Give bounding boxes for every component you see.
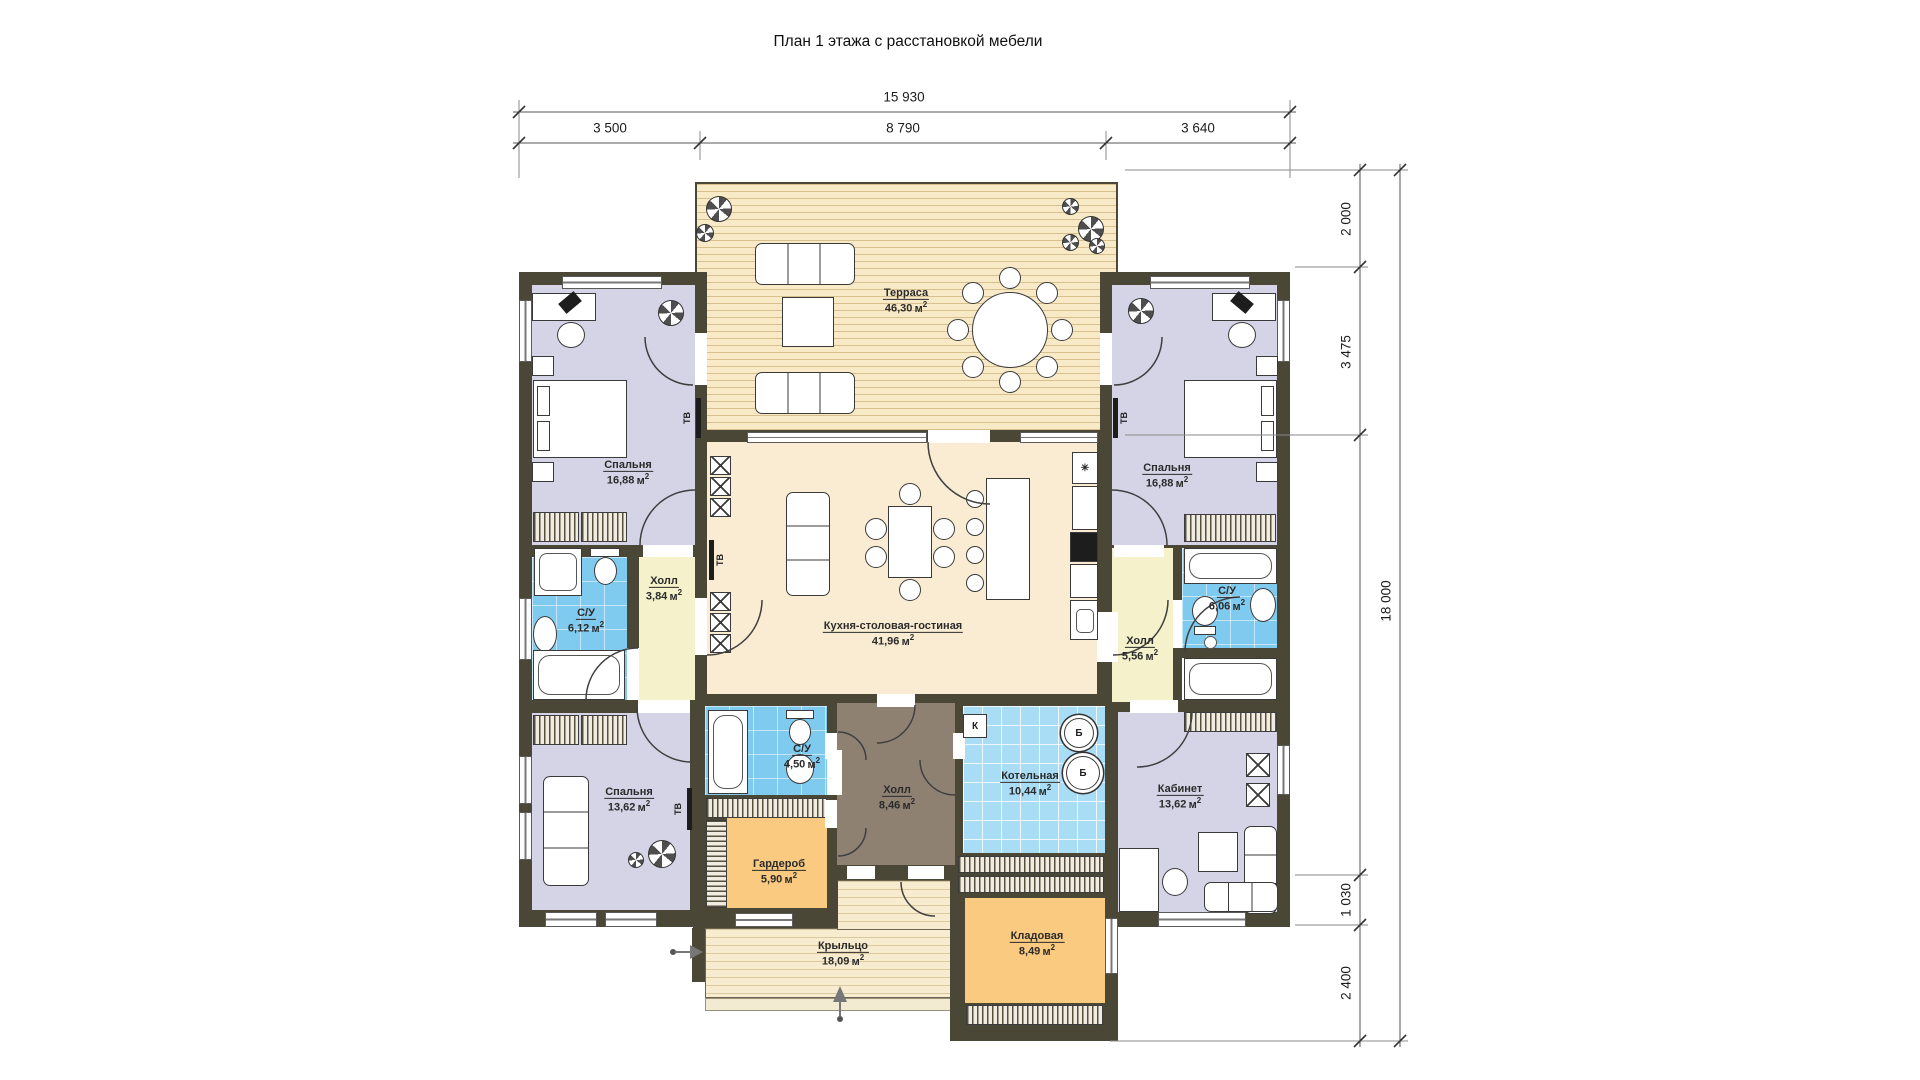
- room-label-bedroom-bl: Спальня 13,62 м2: [604, 785, 654, 815]
- room-name: Кухня-столовая-гостиная: [823, 620, 963, 633]
- room-name: Спальня: [603, 459, 653, 472]
- door-opening: [695, 598, 707, 655]
- stool-icon: [966, 546, 984, 564]
- wardrobe-icon: [1184, 712, 1277, 732]
- sink-icon: [1250, 588, 1276, 622]
- chair-icon: [899, 483, 921, 505]
- shelving-icon: [958, 876, 1104, 893]
- chair-icon: [865, 518, 887, 540]
- door-opening: [825, 733, 837, 759]
- window: [519, 300, 532, 362]
- shelf-icon: [710, 613, 731, 632]
- pillow-icon: [537, 421, 550, 451]
- chair-icon: [933, 518, 955, 540]
- dim-seg: 3 640: [1181, 121, 1215, 136]
- coffee-table-icon: [1198, 832, 1238, 872]
- plant-icon: [1062, 198, 1079, 215]
- room-area: 41,96 м2: [872, 636, 914, 648]
- wardrobe-icon: [581, 715, 627, 745]
- dim-total-height: 18 000: [1379, 580, 1394, 621]
- room-area: 5,56 м2: [1122, 651, 1158, 663]
- room-name: Котельная: [1000, 770, 1060, 783]
- chair-icon: [899, 579, 921, 601]
- desk-chair-icon: [1228, 322, 1256, 348]
- door-opening: [643, 545, 693, 557]
- shelf-icon: [710, 456, 731, 475]
- ceiling-fan-icon: [658, 300, 684, 326]
- pillow-icon: [1261, 421, 1274, 451]
- window: [519, 756, 532, 804]
- nightstand-icon: [532, 356, 554, 376]
- room-area: 5,90 м2: [761, 874, 797, 886]
- dim-seg: 2 000: [1339, 202, 1354, 236]
- room-area: 4,50 м2: [784, 759, 820, 771]
- nightstand-icon: [532, 462, 554, 482]
- desk-icon: [1119, 848, 1159, 912]
- sink-icon: [533, 616, 557, 652]
- dim-seg: 3 475: [1339, 335, 1354, 369]
- stool-icon: [966, 518, 984, 536]
- porch-column: [692, 928, 705, 982]
- nightstand-icon: [1256, 356, 1278, 376]
- stool-icon: [966, 490, 984, 508]
- room-area: 6,12 м2: [568, 623, 604, 635]
- room-area: 16,88 м2: [607, 475, 649, 487]
- shelf-icon: [1246, 753, 1270, 777]
- door-opening: [627, 648, 639, 700]
- room-name: Терраса: [883, 287, 929, 300]
- room-name: Кабинет: [1157, 783, 1204, 796]
- tv-icon: [1113, 398, 1118, 438]
- corner-sofa-icon: [1204, 882, 1278, 912]
- boiler-tank-icon: Б: [1066, 756, 1100, 790]
- door-opening: [1097, 612, 1118, 662]
- boiler-tank-icon: Б: [1064, 718, 1094, 748]
- toilet-tank-icon: [590, 548, 620, 557]
- ceiling-fan-icon: [628, 852, 644, 868]
- dim-seg: 3 500: [593, 121, 627, 136]
- desk-chair-icon: [557, 322, 585, 348]
- chair-icon: [947, 319, 969, 341]
- chair-icon: [999, 371, 1021, 393]
- toilet-icon: [594, 557, 617, 585]
- sofa-icon: [755, 372, 855, 414]
- boiler-k-box: К: [963, 714, 987, 738]
- bathtub-icon: [1184, 658, 1277, 700]
- room-label-su-center: С/У 4,50 м2: [784, 742, 820, 772]
- room-name: Холл: [1125, 635, 1155, 648]
- chair-icon: [933, 546, 955, 568]
- plant-icon: [696, 224, 714, 242]
- entry-door-opening: [847, 866, 875, 879]
- tv-label: ТВ: [715, 554, 725, 566]
- room-area: 18,09 м2: [822, 956, 864, 968]
- chair-icon: [1051, 319, 1073, 341]
- floor-plan-canvas: План 1 этажа с расстановкой мебели: [0, 0, 1920, 1080]
- chair-icon: [962, 356, 984, 378]
- bathtub-icon: [1184, 548, 1277, 584]
- door-opening: [1114, 545, 1164, 557]
- desk-chair-icon: [1162, 868, 1188, 896]
- room-label-su-left: С/У 6,12 м2: [568, 606, 604, 636]
- tv-label: ТВ: [1119, 412, 1129, 424]
- plant-icon: [706, 196, 732, 222]
- window: [519, 812, 532, 860]
- door-opening: [825, 800, 837, 828]
- room-name: Гардероб: [752, 858, 806, 871]
- tv-label: ТВ: [673, 803, 683, 815]
- shelf-icon: [710, 592, 731, 611]
- wardrobe-icon: [706, 798, 827, 818]
- window: [545, 912, 597, 927]
- chair-icon: [1036, 282, 1058, 304]
- bathtub-icon: [708, 710, 748, 794]
- window: [1277, 745, 1290, 795]
- room-name: Холл: [882, 784, 912, 797]
- shelf-icon: [710, 498, 731, 517]
- chair-icon: [999, 267, 1021, 289]
- room-label-bedroom-tl: Спальня 16,88 м2: [603, 458, 653, 488]
- window: [1150, 276, 1250, 289]
- room-label-terrace: Терраса 46,30 м2: [883, 286, 929, 316]
- room-label-kitchen: Кухня-столовая-гостиная 41,96 м2: [823, 619, 963, 649]
- dim-seg: 2 400: [1339, 966, 1354, 1000]
- window: [1277, 300, 1290, 362]
- nightstand-icon: [1256, 462, 1278, 482]
- room-area: 6,06 м2: [1209, 601, 1245, 613]
- kitchen-island-icon: [986, 478, 1030, 600]
- round-table-icon: [972, 292, 1048, 368]
- sofa-icon: [755, 243, 855, 285]
- coffee-table-icon: [782, 297, 834, 347]
- toilet-tank-icon: [1194, 626, 1216, 635]
- room-label-hall-small: Холл 3,84 м2: [646, 574, 682, 604]
- dim-seg: 8 790: [886, 121, 920, 136]
- ceiling-fan-icon: [648, 840, 676, 868]
- room-label-bedroom-tr: Спальня 16,88 м2: [1142, 461, 1192, 491]
- room-name: С/У: [792, 743, 812, 756]
- wardrobe-icon: [533, 512, 579, 542]
- room-label-cabinet: Кабинет 13,62 м2: [1157, 782, 1204, 812]
- door-opening: [1130, 700, 1178, 713]
- drain-icon: [1204, 636, 1217, 649]
- tv-label: ТВ: [682, 412, 692, 424]
- window: [747, 432, 927, 443]
- ceiling-fan-icon: [1128, 298, 1154, 324]
- door-opening: [928, 430, 990, 443]
- fridge-icon: ✳: [1072, 452, 1098, 484]
- window: [605, 912, 657, 927]
- oven-icon: [1070, 532, 1098, 562]
- room-area: 8,49 м2: [1019, 946, 1055, 958]
- room-hall-right: [1112, 548, 1173, 702]
- room-area: 10,44 м2: [1009, 786, 1051, 798]
- chair-icon: [1036, 356, 1058, 378]
- room-label-wardrobe: Гардероб 5,90 м2: [752, 857, 806, 887]
- room-name: Крыльцо: [817, 940, 869, 953]
- plant-icon: [1062, 234, 1079, 251]
- shelf-icon: [710, 477, 731, 496]
- tv-icon: [709, 540, 714, 580]
- room-name: С/У: [576, 607, 596, 620]
- shelf-icon: [1246, 783, 1270, 807]
- door-opening: [877, 694, 915, 707]
- door-opening: [1173, 600, 1182, 648]
- dim-seg: 1 030: [1339, 883, 1354, 917]
- shelving-icon: [958, 856, 1104, 873]
- room-name: Кладовая: [1010, 930, 1065, 943]
- room-label-boiler: Котельная 10,44 м2: [1000, 769, 1060, 799]
- room-name: Холл: [649, 575, 679, 588]
- room-area: 16,88 м2: [1146, 478, 1188, 490]
- room-name: Спальня: [604, 786, 654, 799]
- room-label-storage: Кладовая 8,49 м2: [1010, 929, 1065, 959]
- chair-icon: [865, 546, 887, 568]
- dim-total-width: 15 930: [883, 90, 924, 105]
- kitchen-sink-icon: [1070, 600, 1098, 640]
- room-area: 13,62 м2: [608, 802, 650, 814]
- window: [1020, 432, 1098, 443]
- sink-basin: [1076, 609, 1094, 633]
- room-label-porch: Крыльцо 18,09 м2: [817, 939, 869, 969]
- dining-table-icon: [888, 506, 932, 578]
- toilet-tank-icon: [786, 710, 814, 719]
- door-opening: [638, 700, 690, 713]
- tv-icon: [696, 398, 701, 438]
- room-label-hall-entry: Холл 8,46 м2: [879, 783, 915, 813]
- bathtub-icon: [533, 650, 625, 700]
- counter-icon: [1072, 486, 1098, 530]
- wardrobe-icon: [706, 820, 727, 908]
- wardrobe-icon: [1184, 514, 1276, 542]
- wardrobe-icon: [533, 715, 579, 745]
- entry-door-opening: [908, 866, 944, 879]
- pillow-icon: [537, 386, 550, 416]
- porch-deck-upper: [837, 880, 955, 930]
- tv-icon: [687, 788, 692, 830]
- plant-icon: [1089, 238, 1105, 254]
- shelf-icon: [710, 634, 731, 653]
- stool-icon: [966, 574, 984, 592]
- window: [1105, 918, 1118, 974]
- room-area: 46,30 м2: [885, 303, 927, 315]
- window: [562, 276, 662, 289]
- room-name: С/У: [1217, 585, 1237, 598]
- sofa-icon: [786, 492, 830, 596]
- door-opening: [695, 333, 707, 385]
- window: [1158, 912, 1246, 927]
- stove-icon: [1070, 564, 1098, 598]
- window: [735, 913, 793, 927]
- room-area: 3,84 м2: [646, 591, 682, 603]
- room-label-hall-right: Холл 5,56 м2: [1122, 634, 1158, 664]
- window: [519, 598, 532, 660]
- shelving-icon: [966, 1005, 1103, 1025]
- pillow-icon: [1261, 386, 1274, 416]
- room-name: Спальня: [1142, 462, 1192, 475]
- porch-step: [705, 998, 955, 1011]
- sofa-icon: [543, 776, 589, 886]
- page-title: План 1 этажа с расстановкой мебели: [774, 33, 1043, 51]
- wardrobe-icon: [581, 512, 627, 542]
- door-opening: [1100, 333, 1112, 385]
- shower-icon: [534, 548, 582, 596]
- chair-icon: [962, 282, 984, 304]
- room-label-su-right: С/У 6,06 м2: [1209, 584, 1245, 614]
- room-area: 8,46 м2: [879, 800, 915, 812]
- room-area: 13,62 м2: [1159, 799, 1201, 811]
